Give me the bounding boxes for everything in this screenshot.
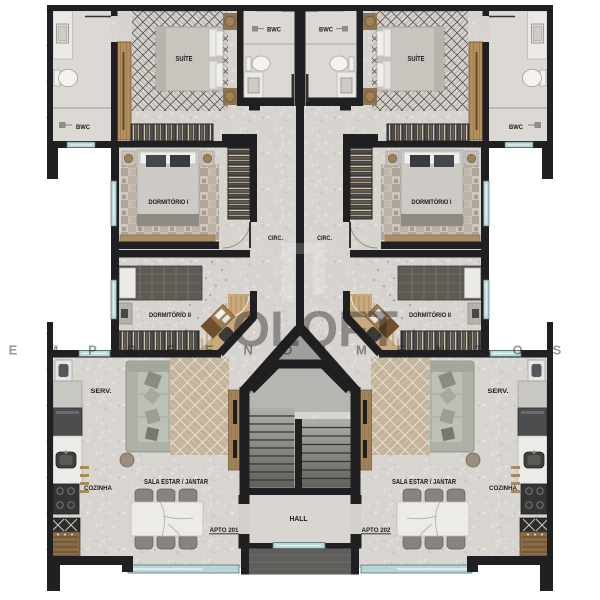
svg-text:BWC: BWC: [76, 124, 90, 131]
svg-text:DORMITÓRIO II: DORMITÓRIO II: [409, 310, 451, 319]
svg-text:CIRC.: CIRC.: [268, 236, 283, 242]
svg-text:SUÍTE: SUÍTE: [176, 54, 193, 63]
svg-text:SERV.: SERV.: [91, 388, 112, 395]
svg-text:APTO 202: APTO 202: [362, 527, 391, 534]
svg-text:DORMITÓRIO I: DORMITÓRIO I: [412, 197, 452, 206]
svg-text:COZINHA: COZINHA: [84, 485, 112, 492]
svg-text:APTO 201: APTO 201: [210, 527, 239, 534]
svg-text:DORMITÓRIO I: DORMITÓRIO I: [149, 197, 189, 206]
svg-text:BWC: BWC: [319, 27, 333, 34]
svg-text:SUÍTE: SUÍTE: [408, 54, 425, 63]
svg-text:SERV.: SERV.: [488, 388, 509, 395]
svg-text:DORMITÓRIO II: DORMITÓRIO II: [149, 310, 191, 319]
svg-text:HALL: HALL: [290, 514, 308, 523]
svg-text:BWC: BWC: [509, 124, 523, 131]
svg-text:CIRC.: CIRC.: [317, 236, 332, 242]
svg-text:COZINHA: COZINHA: [489, 485, 517, 492]
svg-text:BWC: BWC: [267, 27, 281, 34]
svg-text:SALA ESTAR / JANTAR: SALA ESTAR / JANTAR: [392, 479, 456, 486]
svg-text:SALA ESTAR / JANTAR: SALA ESTAR / JANTAR: [144, 479, 208, 486]
svg-text:EMPREENDIMENTOS: EMPREENDIMENTOS: [9, 343, 592, 358]
